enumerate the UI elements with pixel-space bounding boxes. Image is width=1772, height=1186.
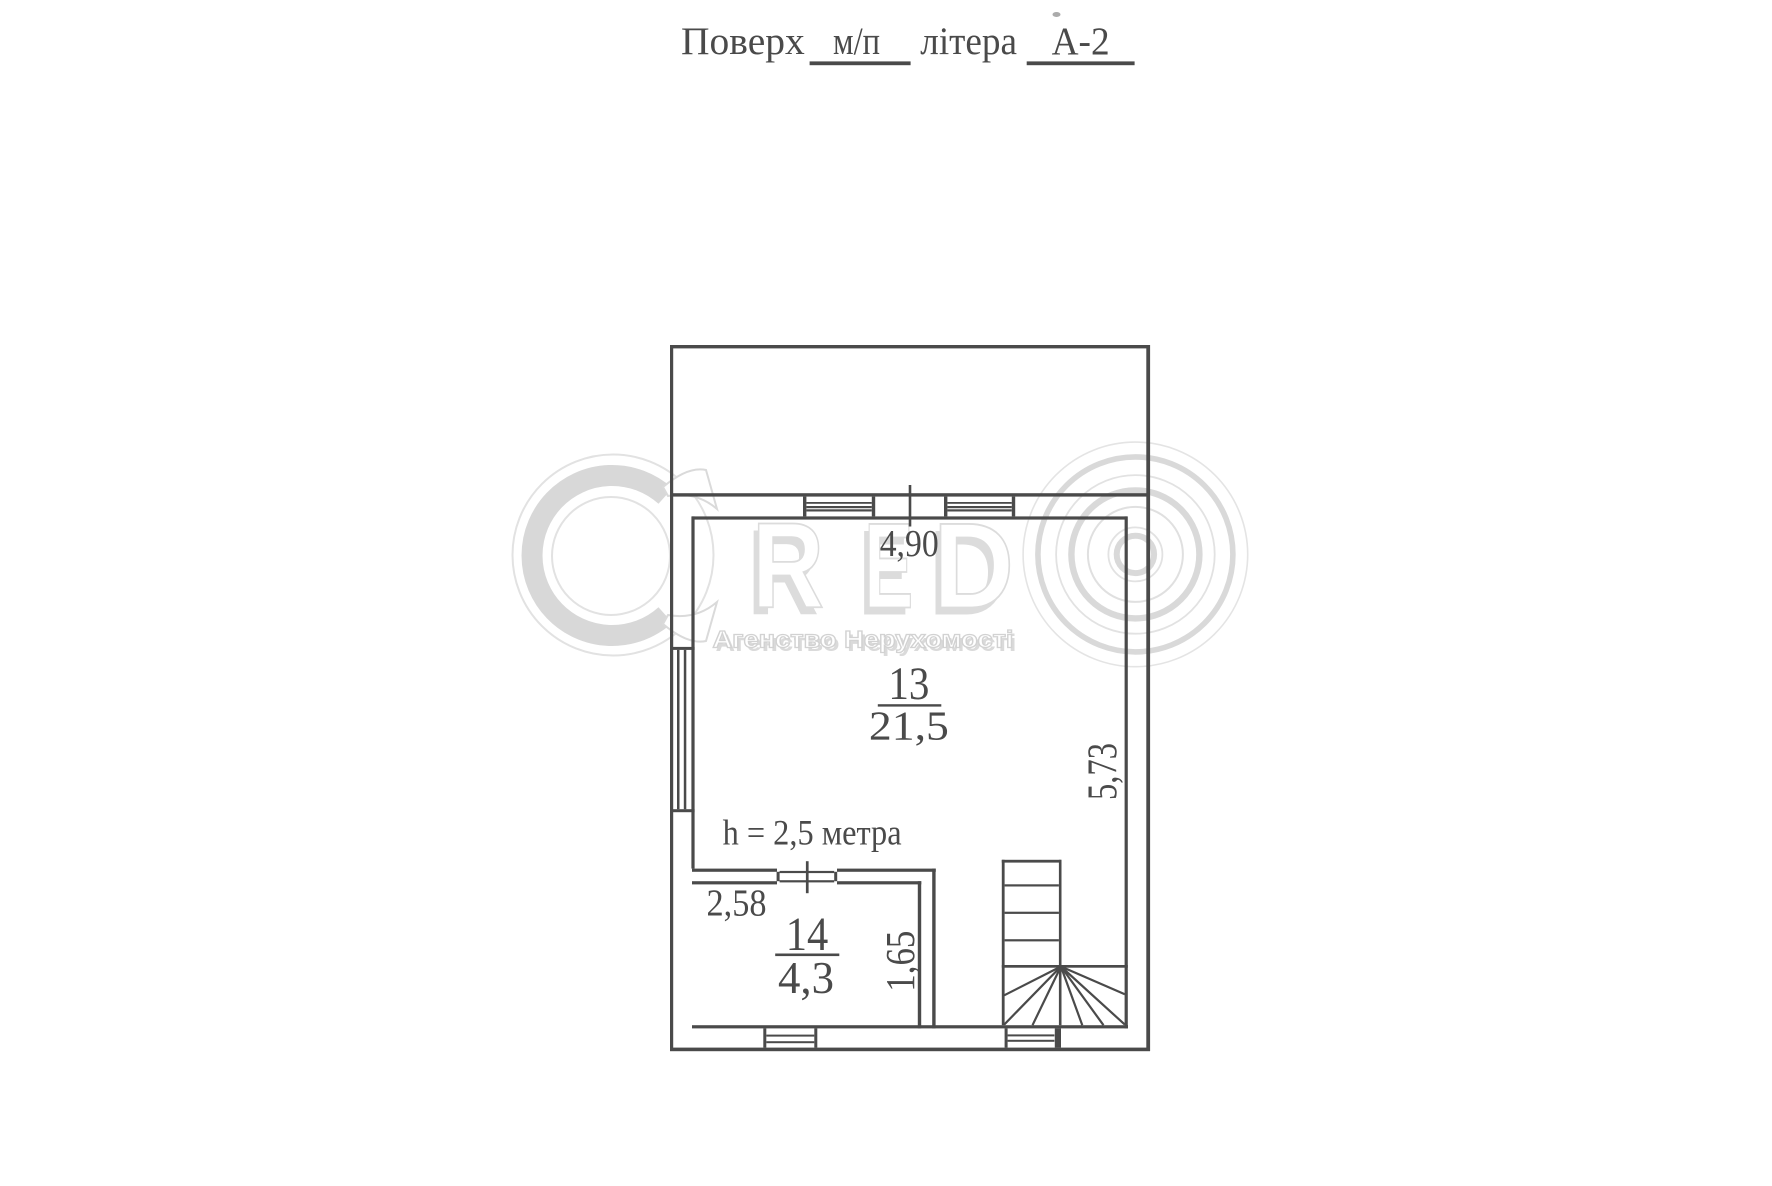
svg-text:літера: літера [920,19,1017,63]
svg-text:4,90: 4,90 [880,523,939,565]
svg-text:Агенство Нерухомості: Агенство Нерухомості [713,627,1014,654]
svg-text:21,5: 21,5 [869,703,949,749]
svg-text:2,58: 2,58 [707,883,767,925]
svg-text:4,3: 4,3 [778,953,834,1003]
svg-text:А-2: А-2 [1052,19,1110,63]
svg-text:м/п: м/п [833,19,880,63]
svg-text:5,73: 5,73 [1080,743,1127,800]
svg-text:1,65: 1,65 [877,931,923,992]
svg-text:Поверх: Поверх [681,19,805,63]
svg-text:h = 2,5 метра: h = 2,5 метра [723,813,902,853]
